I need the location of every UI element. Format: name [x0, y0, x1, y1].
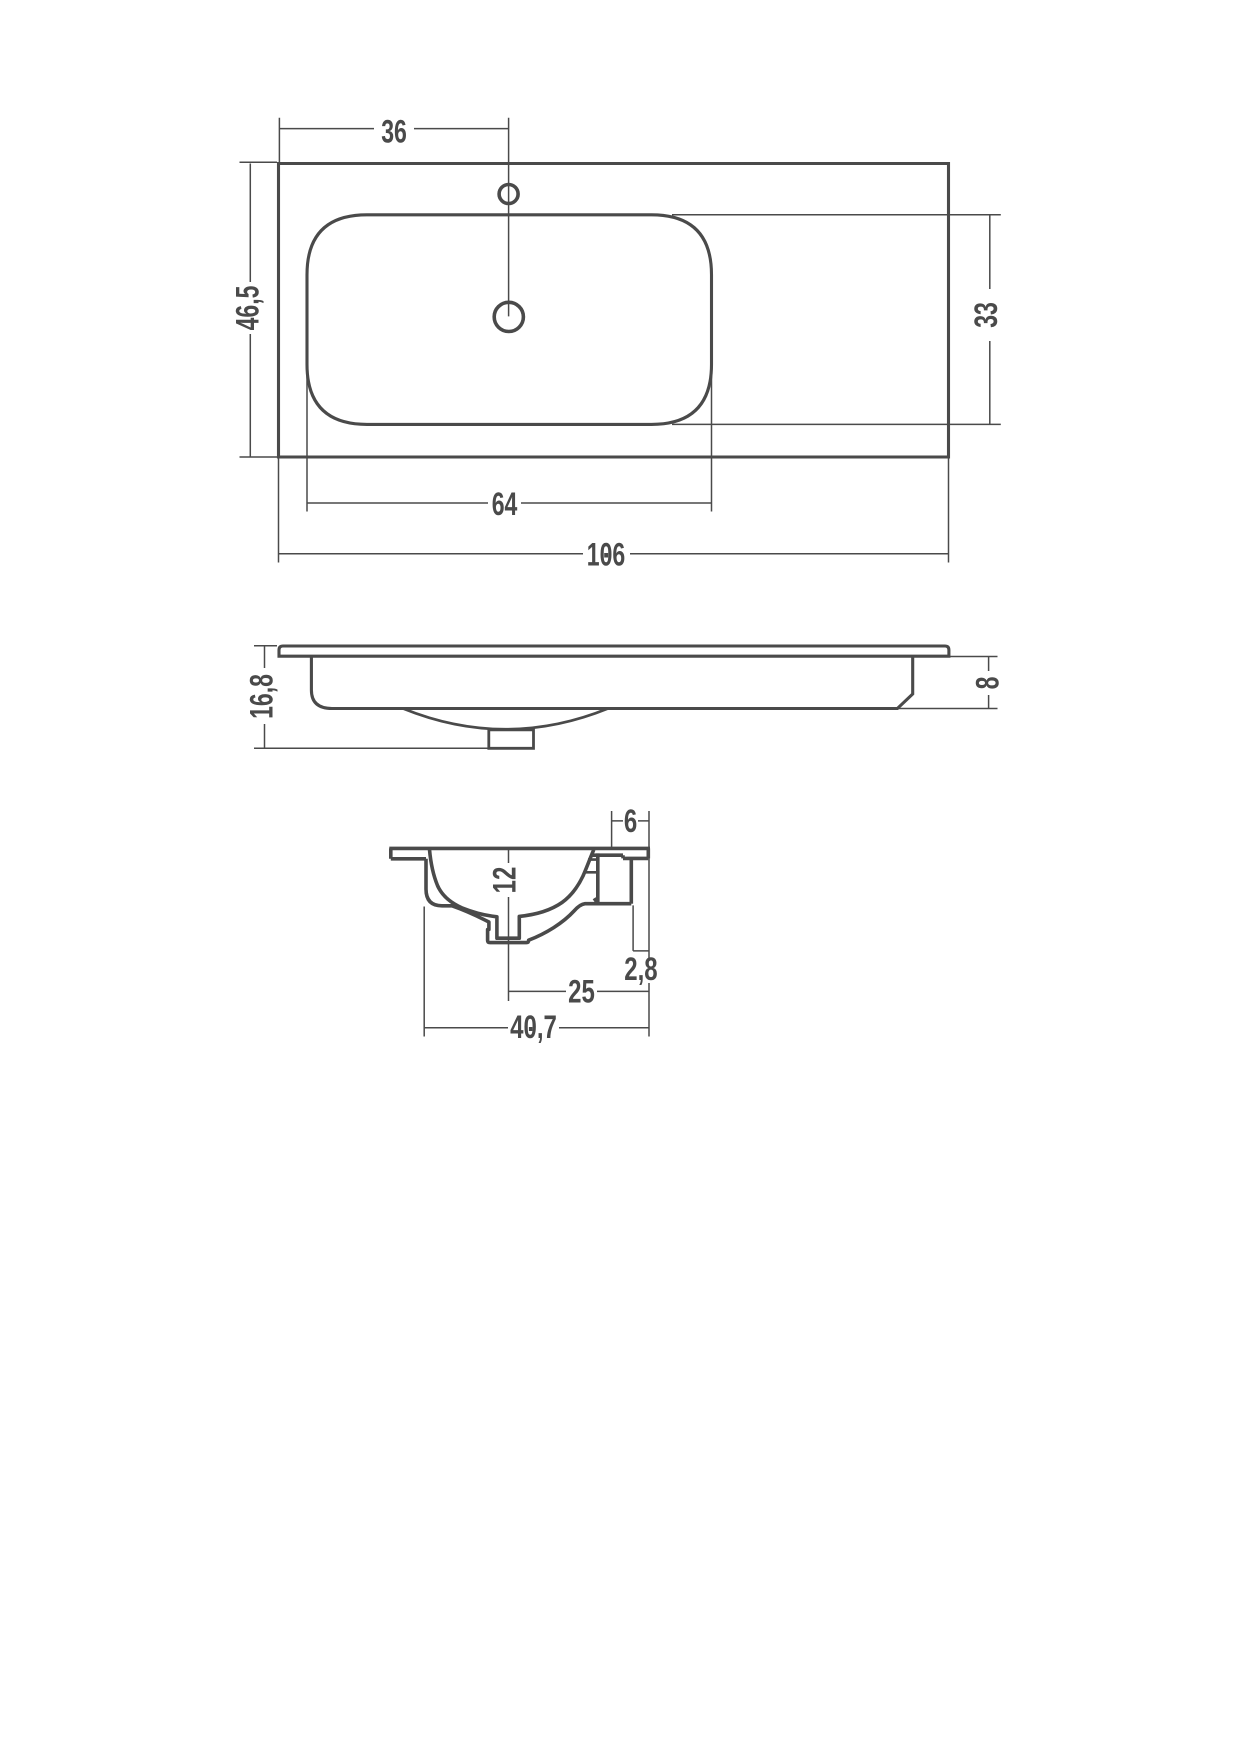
svg-text:64: 64: [492, 486, 518, 522]
svg-text:46,5: 46,5: [230, 286, 266, 331]
svg-text:6: 6: [624, 802, 637, 838]
svg-text:36: 36: [381, 114, 407, 150]
svg-text:40,7: 40,7: [510, 1009, 557, 1045]
svg-text:16,8: 16,8: [244, 674, 280, 719]
svg-text:2,8: 2,8: [624, 951, 657, 987]
svg-text:33: 33: [968, 302, 1004, 328]
svg-text:25: 25: [568, 973, 595, 1009]
svg-text:12: 12: [486, 867, 522, 894]
svg-text:8: 8: [970, 677, 1006, 690]
